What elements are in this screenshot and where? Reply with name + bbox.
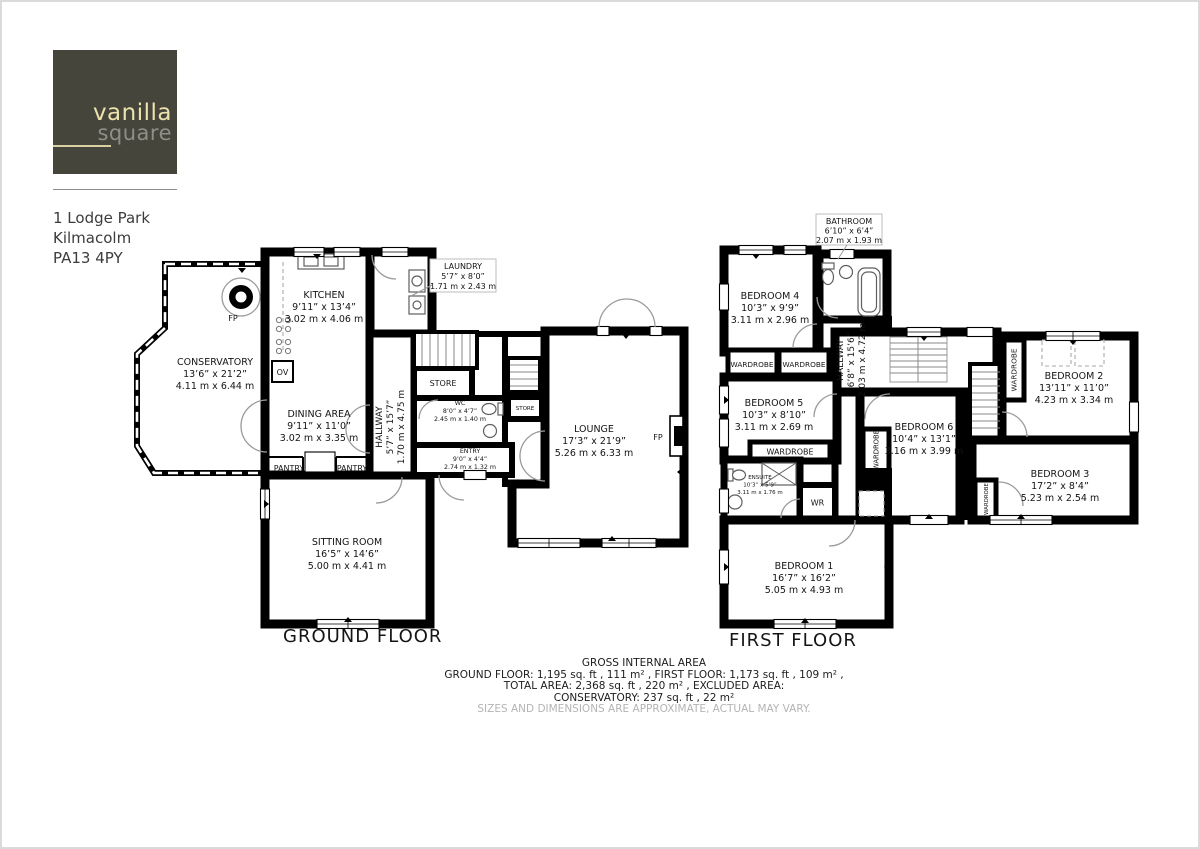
label-fp-conservatory: FP [228, 314, 238, 323]
svg-text:2.74 m x 1.32 m: 2.74 m x 1.32 m [444, 464, 496, 471]
svg-text:3.11 m x 2.69 m: 3.11 m x 2.69 m [735, 422, 814, 433]
svg-text:6’10” x 6’4”: 6’10” x 6’4” [825, 227, 874, 236]
svg-text:17’2” x 8’4”: 17’2” x 8’4” [1031, 481, 1089, 492]
svg-text:4.23 m x 3.34 m: 4.23 m x 3.34 m [1035, 395, 1114, 406]
svg-text:2.45 m x 1.40 m: 2.45 m x 1.40 m [434, 416, 486, 423]
svg-text:9’11” x 13’4”: 9’11” x 13’4” [292, 302, 356, 313]
label-wr: WR [811, 499, 825, 508]
svg-text:HALLWAY: HALLWAY [375, 406, 385, 448]
svg-text:3.02 m x 3.35 m: 3.02 m x 3.35 m [280, 433, 359, 444]
svg-text:1.70 m x 4.75 m: 1.70 m x 4.75 m [397, 390, 407, 464]
svg-text:1.71 m x 2.43 m: 1.71 m x 2.43 m [430, 282, 496, 291]
first-floor-title: FIRST FLOOR [729, 630, 857, 651]
label-kitchen: KITCHEN [303, 290, 344, 301]
svg-text:5.00 m x 4.41 m: 5.00 m x 4.41 m [308, 561, 387, 572]
svg-text:13’11” x 11’0”: 13’11” x 11’0” [1039, 383, 1109, 394]
label-wardrobe-3: WARDROBE [766, 448, 813, 457]
disclaimer: SIZES AND DIMENSIONS ARE APPROXIMATE, AC… [299, 704, 989, 716]
svg-text:16’7” x 16’2”: 16’7” x 16’2” [772, 573, 836, 584]
svg-text:9’0” x 4’4”: 9’0” x 4’4” [453, 456, 487, 463]
svg-text:10’3” x 8’10”: 10’3” x 8’10” [742, 410, 806, 421]
label-wardrobe-2: WARDROBE [783, 360, 826, 369]
label-pantry-left: PANTRY [274, 464, 305, 473]
label-wardrobe-4: WARDROBE [873, 430, 881, 470]
label-sitting: SITTING ROOM [312, 537, 382, 548]
label-wardrobe-5: WARDROBE [1010, 348, 1019, 391]
laundry-appliances [409, 270, 425, 314]
label-dining: DINING AREA [287, 409, 351, 420]
label-store-1: STORE [430, 379, 457, 388]
svg-text:5.05 m x 4.93 m: 5.05 m x 4.93 m [765, 585, 844, 596]
svg-text:10’3” x 9’9”: 10’3” x 9’9” [741, 303, 799, 314]
label-bedroom1: BEDROOM 1 [775, 561, 834, 572]
label-pantry-right: PANTRY [337, 464, 368, 473]
stairs-secondary-ff [970, 364, 1002, 440]
sink-icon [840, 266, 853, 279]
label-laundry: LAUNDRY [444, 262, 482, 271]
toilet-cistern [498, 403, 503, 415]
label-wc: WC [455, 400, 466, 407]
pantry-unit [305, 452, 335, 472]
svg-text:13’6” x 21’2”: 13’6” x 21’2” [183, 369, 247, 380]
svg-text:3.16 m x 3.99 m: 3.16 m x 3.99 m [885, 446, 964, 457]
sink-icon [484, 425, 497, 438]
svg-text:4.11 m x 6.44 m: 4.11 m x 6.44 m [176, 381, 255, 392]
label-bedroom5: BEDROOM 5 [745, 398, 804, 409]
toilet-icon [823, 270, 834, 285]
floorplan-page: vanilla square 1 Lodge Park Kilmacolm PA… [0, 0, 1200, 849]
stairs-main-ff [890, 337, 947, 382]
label-bedroom6: BEDROOM 6 [895, 422, 954, 433]
brand-name-bottom: square [97, 121, 172, 145]
toilet-cistern [822, 263, 834, 269]
toilet-icon [733, 470, 746, 480]
svg-text:5’7” x 15’7”: 5’7” x 15’7” [386, 400, 396, 455]
sink-icon [728, 495, 742, 509]
svg-text:16’5” x 14’6”: 16’5” x 14’6” [315, 549, 379, 560]
svg-text:5’7” x 8’0”: 5’7” x 8’0” [441, 272, 485, 281]
label-bedroom3: BEDROOM 3 [1031, 469, 1090, 480]
void-dashed-square [859, 491, 884, 516]
svg-text:6’8” x 15’6”: 6’8” x 15’6” [847, 333, 857, 388]
svg-text:10’3” x 5’9”: 10’3” x 5’9” [743, 483, 777, 489]
room-laundry [370, 252, 432, 334]
svg-text:5.23 m x 2.54 m: 5.23 m x 2.54 m [1021, 493, 1100, 504]
svg-text:3.02 m x 4.06 m: 3.02 m x 4.06 m [285, 314, 364, 325]
lounge-fireplace [670, 416, 685, 456]
label-wardrobe-1: WARDROBE [731, 360, 774, 369]
svg-text:5.26 m x 6.33 m: 5.26 m x 6.33 m [555, 448, 634, 459]
svg-text:HALLWAY: HALLWAY [836, 339, 846, 381]
label-conservatory: CONSERVATORY [177, 357, 253, 368]
svg-text:9’11” x 11’0”: 9’11” x 11’0” [287, 421, 351, 432]
svg-text:2.07 m x 1.93 m: 2.07 m x 1.93 m [816, 236, 882, 245]
label-lounge: LOUNGE [574, 424, 614, 435]
svg-text:10’4” x 13’1”: 10’4” x 13’1” [892, 434, 956, 445]
logo-divider [53, 189, 177, 190]
brand-underline [53, 145, 111, 147]
svg-text:2.03 m x 4.72 m: 2.03 m x 4.72 m [858, 323, 868, 397]
svg-text:17’3” x 21’9”: 17’3” x 21’9” [562, 436, 626, 447]
label-ensuite: ENSUITE [748, 475, 772, 481]
label-oven: OV [277, 368, 289, 377]
label-wardrobe-6: WARDROBE [984, 483, 990, 515]
area-summary: GROSS INTERNAL AREA GROUND FLOOR: 1,195 … [299, 658, 989, 716]
area-summary-title: GROSS INTERNAL AREA [299, 658, 989, 670]
svg-text:3.11 m x 1.76 m: 3.11 m x 1.76 m [737, 490, 782, 496]
room-bedroom1 [724, 520, 889, 624]
svg-text:3.11 m x 2.96 m: 3.11 m x 2.96 m [731, 315, 810, 326]
ground-floor-plan: CONSERVATORY 13’6” x 21’2” 4.11 m x 6.44… [130, 240, 705, 655]
label-bedroom4: BEDROOM 4 [741, 291, 800, 302]
first-floor-plan: BATHROOM 6’10” x 6’4” 2.07 m x 1.93 m BE… [700, 200, 1167, 660]
address-line-1: 1 Lodge Park [53, 208, 150, 228]
stairs-return-gf [508, 358, 540, 392]
label-store-2: STORE [516, 406, 535, 412]
label-bathroom: BATHROOM [826, 217, 872, 226]
label-bedroom2: BEDROOM 2 [1045, 371, 1104, 382]
svg-text:8’0” x 4’7”: 8’0” x 4’7” [443, 408, 477, 415]
ground-floor-title: GROUND FLOOR [283, 626, 442, 647]
brand-logo: vanilla square [53, 50, 177, 174]
label-entry: ENTRY [460, 448, 481, 455]
label-fp-lounge: FP [653, 433, 663, 442]
toilet-icon [482, 404, 496, 415]
